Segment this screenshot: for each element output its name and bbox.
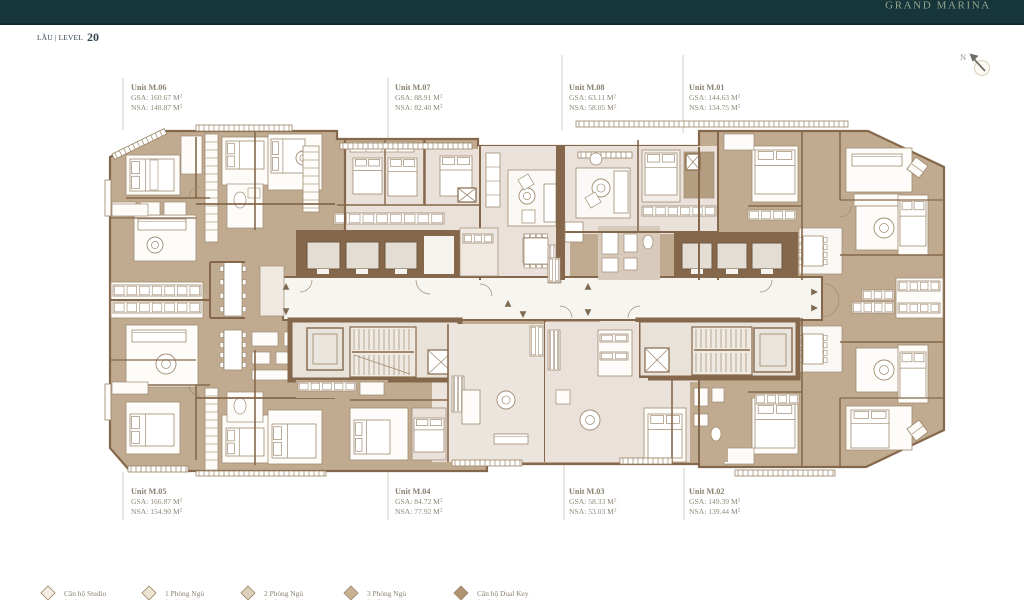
svg-text:NSA: 154.90 M2: NSA: 154.90 M2 <box>131 507 183 516</box>
svg-text:20: 20 <box>87 30 99 44</box>
svg-text:GRAND MARINA: GRAND MARINA <box>885 0 991 12</box>
svg-text:NSA: 58.05 M2: NSA: 58.05 M2 <box>569 103 617 112</box>
svg-text:Căn hộ Dual Key: Căn hộ Dual Key <box>477 589 529 598</box>
svg-text:3 Phòng Ngủ: 3 Phòng Ngủ <box>367 589 406 598</box>
svg-text:GSA: 84.72 M2: GSA: 84.72 M2 <box>395 497 443 506</box>
svg-text:NSA: 148.87 M2: NSA: 148.87 M2 <box>131 103 183 112</box>
svg-text:GSA: 160.67 M2: GSA: 160.67 M2 <box>131 93 183 102</box>
svg-text:GSA: 144.63 M2: GSA: 144.63 M2 <box>689 93 741 102</box>
svg-text:Unit M.04: Unit M.04 <box>395 487 430 496</box>
svg-text:N: N <box>960 52 966 62</box>
svg-text:Unit M.06: Unit M.06 <box>131 83 166 92</box>
svg-text:GSA: 149.39 M2: GSA: 149.39 M2 <box>689 497 741 506</box>
svg-text:GSA: 58.33 M2: GSA: 58.33 M2 <box>569 497 617 506</box>
svg-text:NSA: 134.75 M2: NSA: 134.75 M2 <box>689 103 741 112</box>
svg-text:Unit M.07: Unit M.07 <box>395 83 430 92</box>
svg-text:LẦU | LEVEL: LẦU | LEVEL <box>37 32 83 42</box>
svg-text:Unit M.08: Unit M.08 <box>569 83 604 92</box>
svg-text:NSA: 77.92 M2: NSA: 77.92 M2 <box>395 507 443 516</box>
svg-text:NSA: 53.03 M2: NSA: 53.03 M2 <box>569 507 617 516</box>
svg-text:Unit M.02: Unit M.02 <box>689 487 724 496</box>
svg-text:GSA: 166.87 M2: GSA: 166.87 M2 <box>131 497 183 506</box>
svg-text:Căn hộ Studio: Căn hộ Studio <box>64 589 107 598</box>
svg-text:GSA: 88.91 M2: GSA: 88.91 M2 <box>395 93 443 102</box>
svg-text:NSA: 82.40 M2: NSA: 82.40 M2 <box>395 103 443 112</box>
svg-text:Unit M.05: Unit M.05 <box>131 487 166 496</box>
svg-text:NSA: 139.44 M2: NSA: 139.44 M2 <box>689 507 741 516</box>
svg-text:1 Phòng Ngủ: 1 Phòng Ngủ <box>165 589 204 598</box>
svg-text:Unit M.01: Unit M.01 <box>689 83 724 92</box>
svg-text:Unit M.03: Unit M.03 <box>569 487 604 496</box>
svg-text:2 Phòng Ngủ: 2 Phòng Ngủ <box>264 589 303 598</box>
svg-text:GSA: 63.11 M2: GSA: 63.11 M2 <box>569 93 617 102</box>
